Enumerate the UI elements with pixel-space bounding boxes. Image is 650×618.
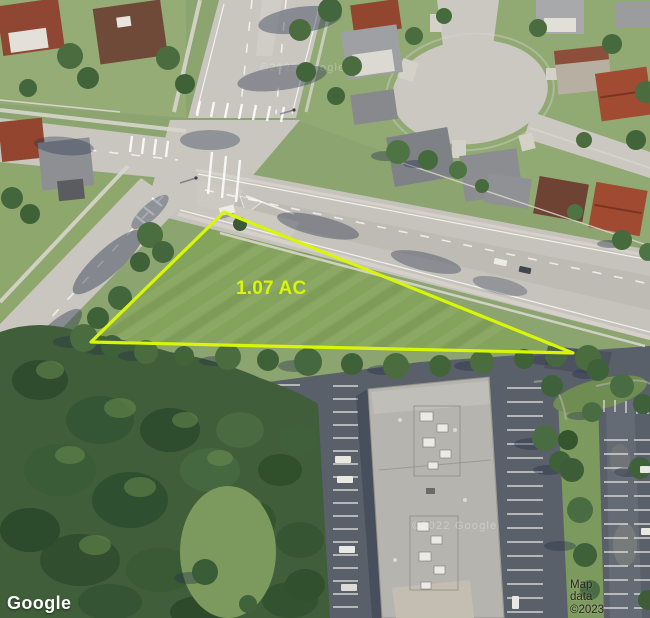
aerial-imagery: ©2023 Google ©2022 Google: [0, 0, 650, 618]
watermark-text: ©2022 Google: [412, 520, 498, 532]
map-data-attribution: Map data ©2023: [570, 579, 616, 616]
map-canvas[interactable]: ©2023 Google ©2022 Google: [0, 0, 650, 618]
parcel-area-label: 1.07 AC: [236, 278, 306, 300]
commercial-building: [356, 377, 504, 618]
google-logo[interactable]: Google: [7, 593, 71, 614]
